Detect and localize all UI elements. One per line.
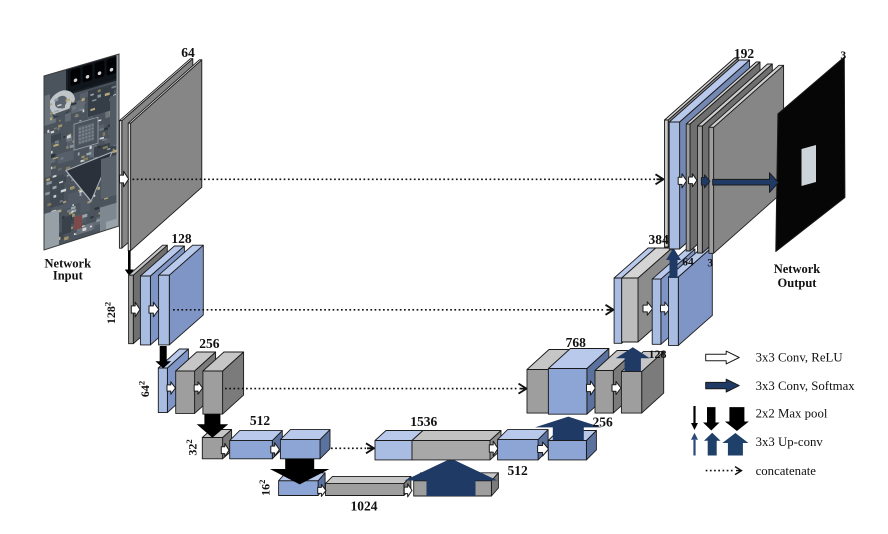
svg-text:3x3 Conv, Softmax: 3x3 Conv, Softmax [756, 379, 856, 393]
svg-text:1536: 1536 [410, 414, 437, 429]
svg-text:384: 384 [648, 232, 669, 247]
svg-text:64: 64 [682, 257, 694, 269]
svg-text:256: 256 [199, 336, 220, 351]
svg-text:1024: 1024 [351, 499, 378, 514]
svg-text:64: 64 [181, 45, 195, 60]
svg-text:Output: Output [778, 276, 818, 290]
svg-text:256: 256 [592, 415, 613, 430]
svg-text:3x3 Up-conv: 3x3 Up-conv [756, 435, 824, 449]
svg-text:128: 128 [649, 347, 667, 361]
svg-text:768: 768 [566, 335, 587, 350]
svg-text:Input: Input [53, 269, 84, 283]
svg-text:Network: Network [774, 262, 821, 276]
svg-text:3x3 Conv, ReLU: 3x3 Conv, ReLU [756, 351, 843, 365]
svg-text:192: 192 [734, 46, 755, 61]
svg-text:128: 128 [171, 231, 192, 246]
svg-text:concatenate: concatenate [756, 464, 817, 478]
svg-text:2x2 Max pool: 2x2 Max pool [756, 407, 828, 421]
svg-text:3: 3 [707, 258, 713, 270]
svg-text:512: 512 [507, 463, 528, 478]
svg-text:3: 3 [840, 50, 846, 62]
svg-text:512: 512 [250, 413, 271, 428]
